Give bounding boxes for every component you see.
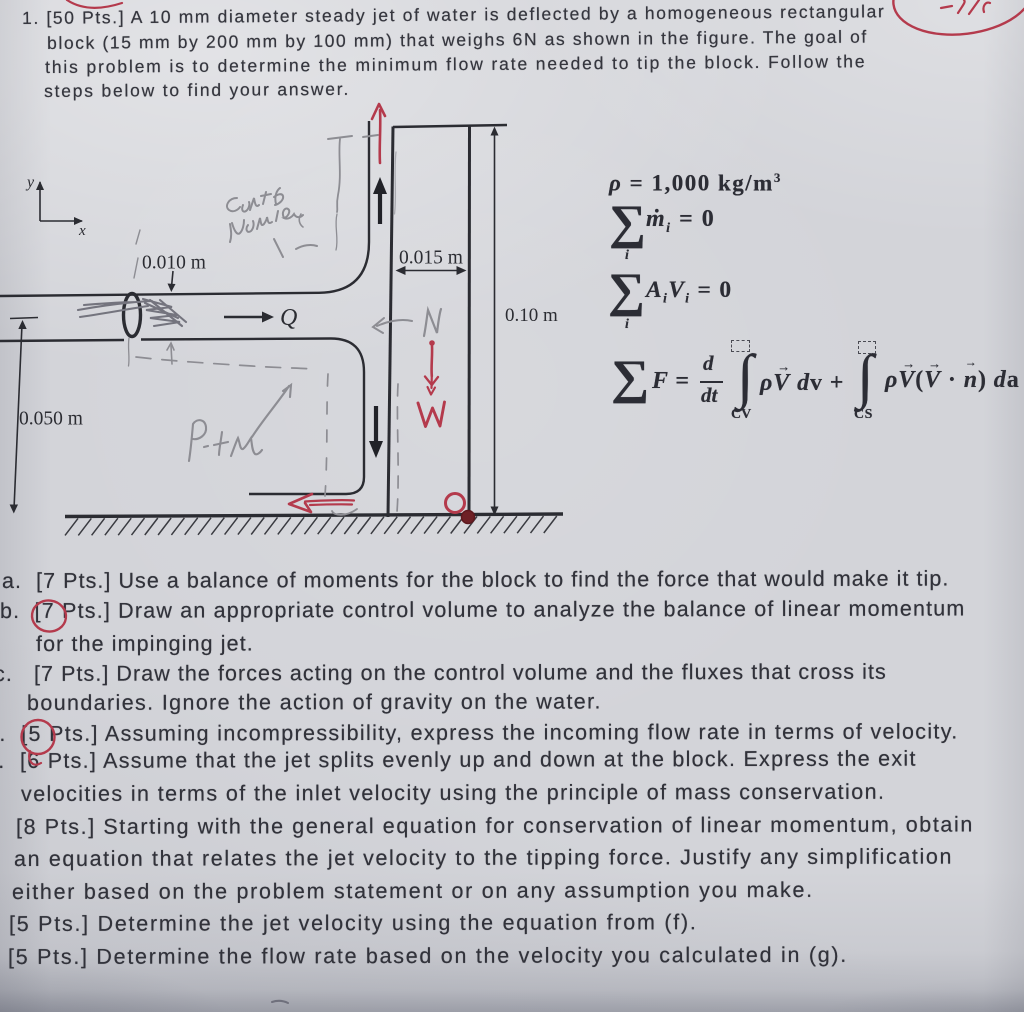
svg-text:x: x [78,223,86,239]
svg-text:Q: Q [280,305,297,331]
svg-text:y: y [25,174,35,191]
svg-text:0.10 m: 0.10 m [505,305,558,326]
svg-text:0.015 m: 0.015 m [399,248,463,269]
svg-text:0.050 m: 0.050 m [19,409,83,430]
svg-text:0.010 m: 0.010 m [142,253,206,274]
